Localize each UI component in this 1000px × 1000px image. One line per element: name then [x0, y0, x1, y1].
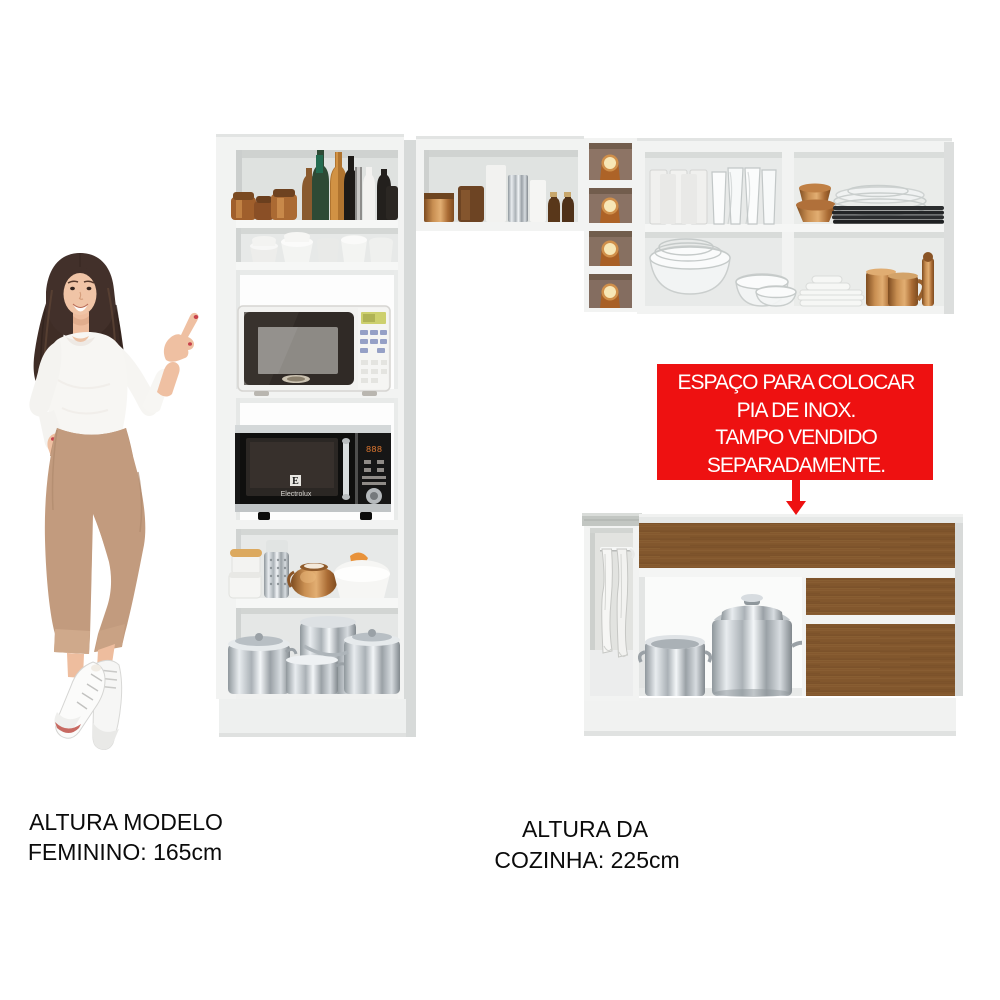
svg-text:COZINHA: 225cm: COZINHA: 225cm — [494, 847, 679, 873]
svg-text:E: E — [292, 476, 299, 487]
svg-text:ALTURA DA: ALTURA DA — [522, 816, 649, 842]
svg-text:FEMININO: 165cm: FEMININO: 165cm — [28, 839, 222, 865]
svg-text:SEPARADAMENTE.: SEPARADAMENTE. — [707, 454, 885, 477]
svg-text:Electrolux: Electrolux — [281, 491, 312, 498]
svg-text:TAMPO VENDIDO: TAMPO VENDIDO — [715, 426, 877, 449]
svg-text:PIA DE INOX.: PIA DE INOX. — [737, 399, 856, 422]
svg-text:ESPAÇO PARA COLOCAR: ESPAÇO PARA COLOCAR — [678, 371, 916, 394]
svg-text:888: 888 — [366, 445, 382, 455]
svg-text:ALTURA MODELO: ALTURA MODELO — [29, 809, 223, 835]
